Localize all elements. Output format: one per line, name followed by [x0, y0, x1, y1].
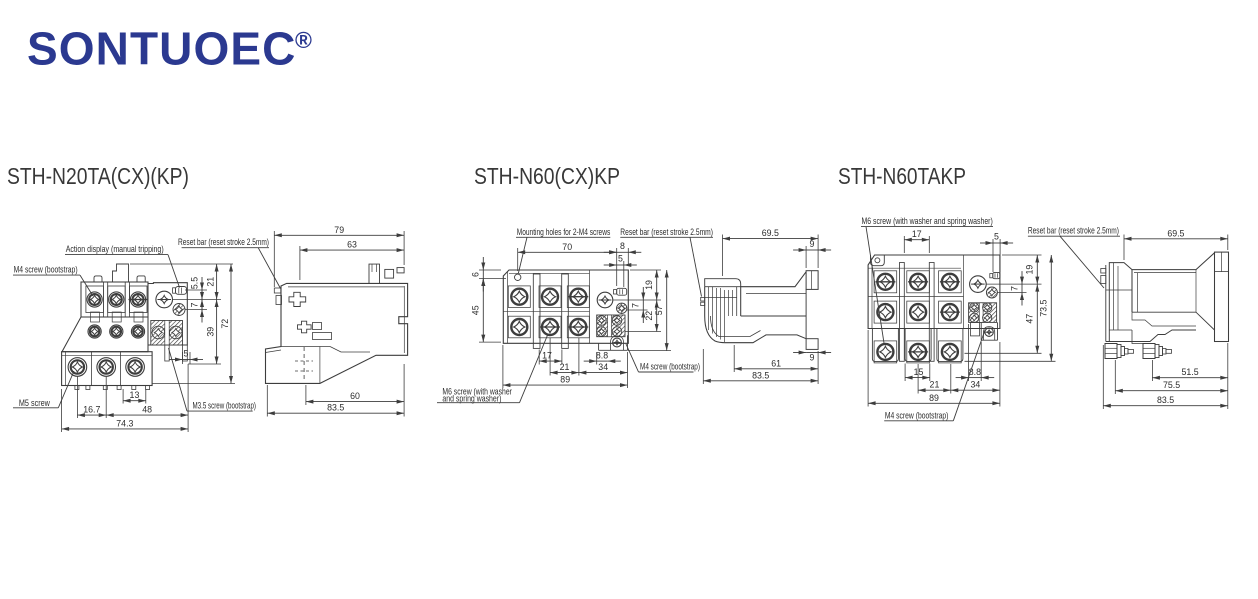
svg-text:6: 6	[471, 272, 481, 277]
svg-text:Action display (manual trippin: Action display (manual tripping)	[66, 244, 164, 255]
svg-text:16.7: 16.7	[83, 405, 100, 415]
svg-text:Mounting holes for 2-M4 screws: Mounting holes for 2-M4 screws	[517, 227, 611, 238]
svg-text:M6 screw (with washer and spri: M6 screw (with washer and spring washer)	[862, 216, 993, 227]
svg-text:13: 13	[130, 390, 140, 400]
svg-text:39: 39	[205, 327, 215, 337]
svg-text:79: 79	[334, 225, 344, 235]
svg-text:83.5: 83.5	[327, 403, 344, 413]
svg-text:Reset bar (reset stroke 2.5mm): Reset bar (reset stroke 2.5mm)	[178, 237, 269, 248]
svg-text:5: 5	[184, 349, 189, 359]
svg-text:Reset bar (reset stroke 2.5mm): Reset bar (reset stroke 2.5mm)	[1028, 226, 1119, 237]
svg-text:72: 72	[220, 319, 230, 329]
svg-text:21: 21	[205, 277, 215, 287]
svg-text:M4 screw (bootstrap): M4 screw (bootstrap)	[14, 265, 78, 276]
svg-text:17: 17	[912, 229, 922, 239]
svg-text:61: 61	[771, 358, 781, 368]
svg-text:70: 70	[562, 242, 572, 252]
svg-text:60: 60	[350, 391, 360, 401]
svg-text:®: ®	[295, 27, 312, 53]
svg-text:21: 21	[930, 380, 940, 390]
svg-text:STH-N60(CX)KP: STH-N60(CX)KP	[474, 163, 620, 189]
svg-text:5.5: 5.5	[190, 277, 200, 289]
svg-text:51.5: 51.5	[1182, 367, 1199, 377]
svg-text:5: 5	[994, 232, 999, 242]
svg-text:STH-N20TA(CX)(KP): STH-N20TA(CX)(KP)	[7, 163, 189, 189]
svg-text:M5 screw: M5 screw	[19, 398, 50, 409]
svg-text:8.8: 8.8	[596, 351, 608, 361]
svg-text:15: 15	[914, 367, 924, 377]
svg-text:19: 19	[1025, 265, 1035, 275]
svg-text:7: 7	[631, 303, 641, 308]
svg-text:19: 19	[644, 280, 654, 290]
svg-text:9: 9	[810, 239, 815, 249]
svg-text:34: 34	[598, 362, 608, 372]
svg-text:M4 screw (bootstrap): M4 screw (bootstrap)	[885, 410, 949, 421]
svg-text:48: 48	[142, 405, 152, 415]
svg-text:89: 89	[560, 375, 570, 385]
svg-text:74.3: 74.3	[116, 418, 133, 428]
svg-text:89: 89	[929, 393, 939, 403]
svg-text:5: 5	[618, 254, 623, 264]
svg-text:21: 21	[560, 362, 570, 372]
svg-text:9: 9	[810, 353, 815, 363]
svg-text:57: 57	[654, 305, 664, 315]
svg-text:63: 63	[347, 240, 357, 250]
svg-text:83.5: 83.5	[1157, 395, 1174, 405]
svg-text:22: 22	[644, 311, 654, 321]
svg-text:Reset bar (reset stroke 2.5mm): Reset bar (reset stroke 2.5mm)	[620, 227, 713, 238]
svg-text:STH-N60TAKP: STH-N60TAKP	[838, 163, 966, 189]
svg-text:7: 7	[190, 302, 200, 307]
svg-text:69.5: 69.5	[1167, 228, 1184, 238]
svg-text:8: 8	[620, 241, 625, 251]
svg-text:M3.5 screw (bootstrap): M3.5 screw (bootstrap)	[193, 400, 257, 411]
svg-text:45: 45	[471, 305, 481, 315]
svg-text:75.5: 75.5	[1163, 380, 1180, 390]
svg-text:7: 7	[1009, 286, 1019, 291]
svg-text:SONTUOEC: SONTUOEC	[27, 23, 296, 75]
svg-text:73.5: 73.5	[1039, 299, 1049, 316]
svg-text:M4 screw (bootstrap): M4 screw (bootstrap)	[640, 362, 700, 373]
svg-text:69.5: 69.5	[762, 228, 779, 238]
svg-text:83.5: 83.5	[752, 370, 769, 380]
svg-text:47: 47	[1025, 314, 1035, 324]
svg-text:17: 17	[542, 351, 552, 361]
svg-text:34: 34	[970, 380, 980, 390]
